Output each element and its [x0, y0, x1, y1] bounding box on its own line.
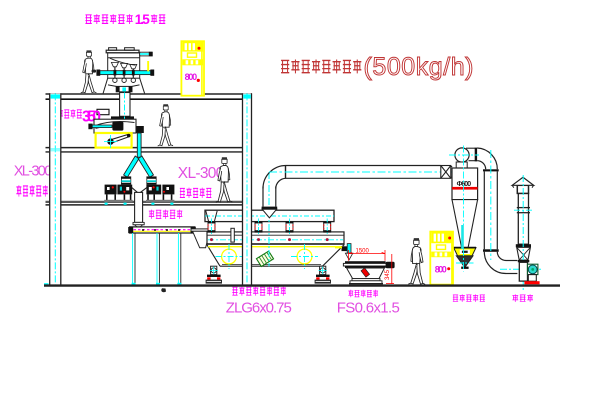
svg-text:800: 800 [185, 72, 198, 82]
svg-text:XL-300: XL-300 [178, 165, 225, 182]
svg-text:1.5: 1.5 [135, 12, 150, 27]
svg-text:XL-300: XL-300 [14, 163, 53, 179]
svg-text:345: 345 [385, 269, 391, 280]
svg-text:800: 800 [435, 265, 447, 275]
svg-text:1500: 1500 [356, 248, 370, 254]
svg-text:(500kg/h): (500kg/h) [364, 53, 474, 81]
svg-text:FS0.6x1.5: FS0.6x1.5 [337, 300, 400, 317]
svg-text:ZLG6x0.75: ZLG6x0.75 [226, 300, 292, 317]
